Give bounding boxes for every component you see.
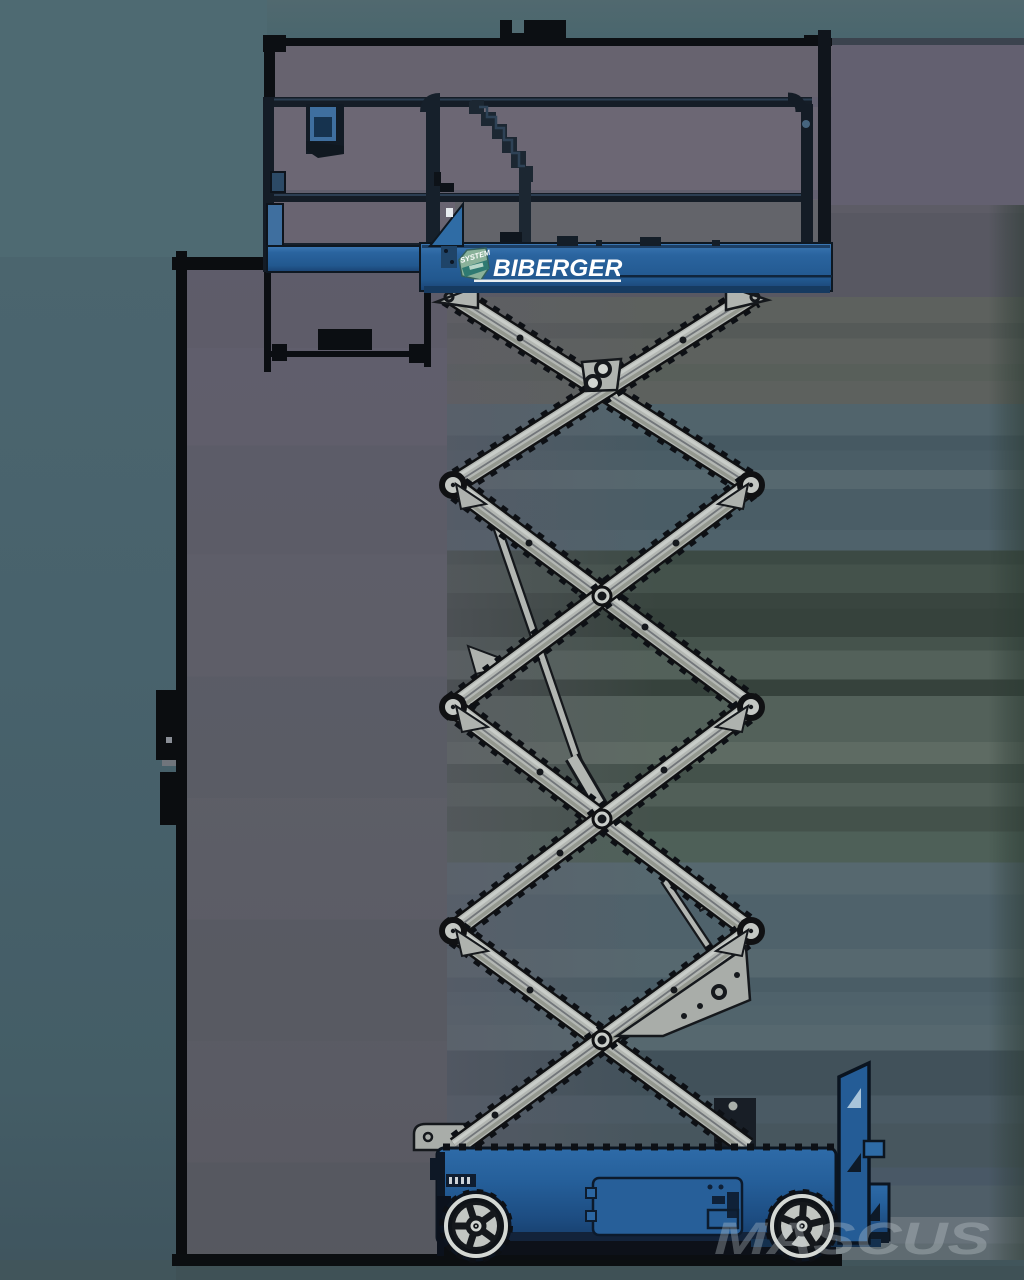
svg-text:MASCUS: MASCUS [714, 1213, 990, 1264]
svg-text:BIBERGER: BIBERGER [493, 255, 623, 282]
